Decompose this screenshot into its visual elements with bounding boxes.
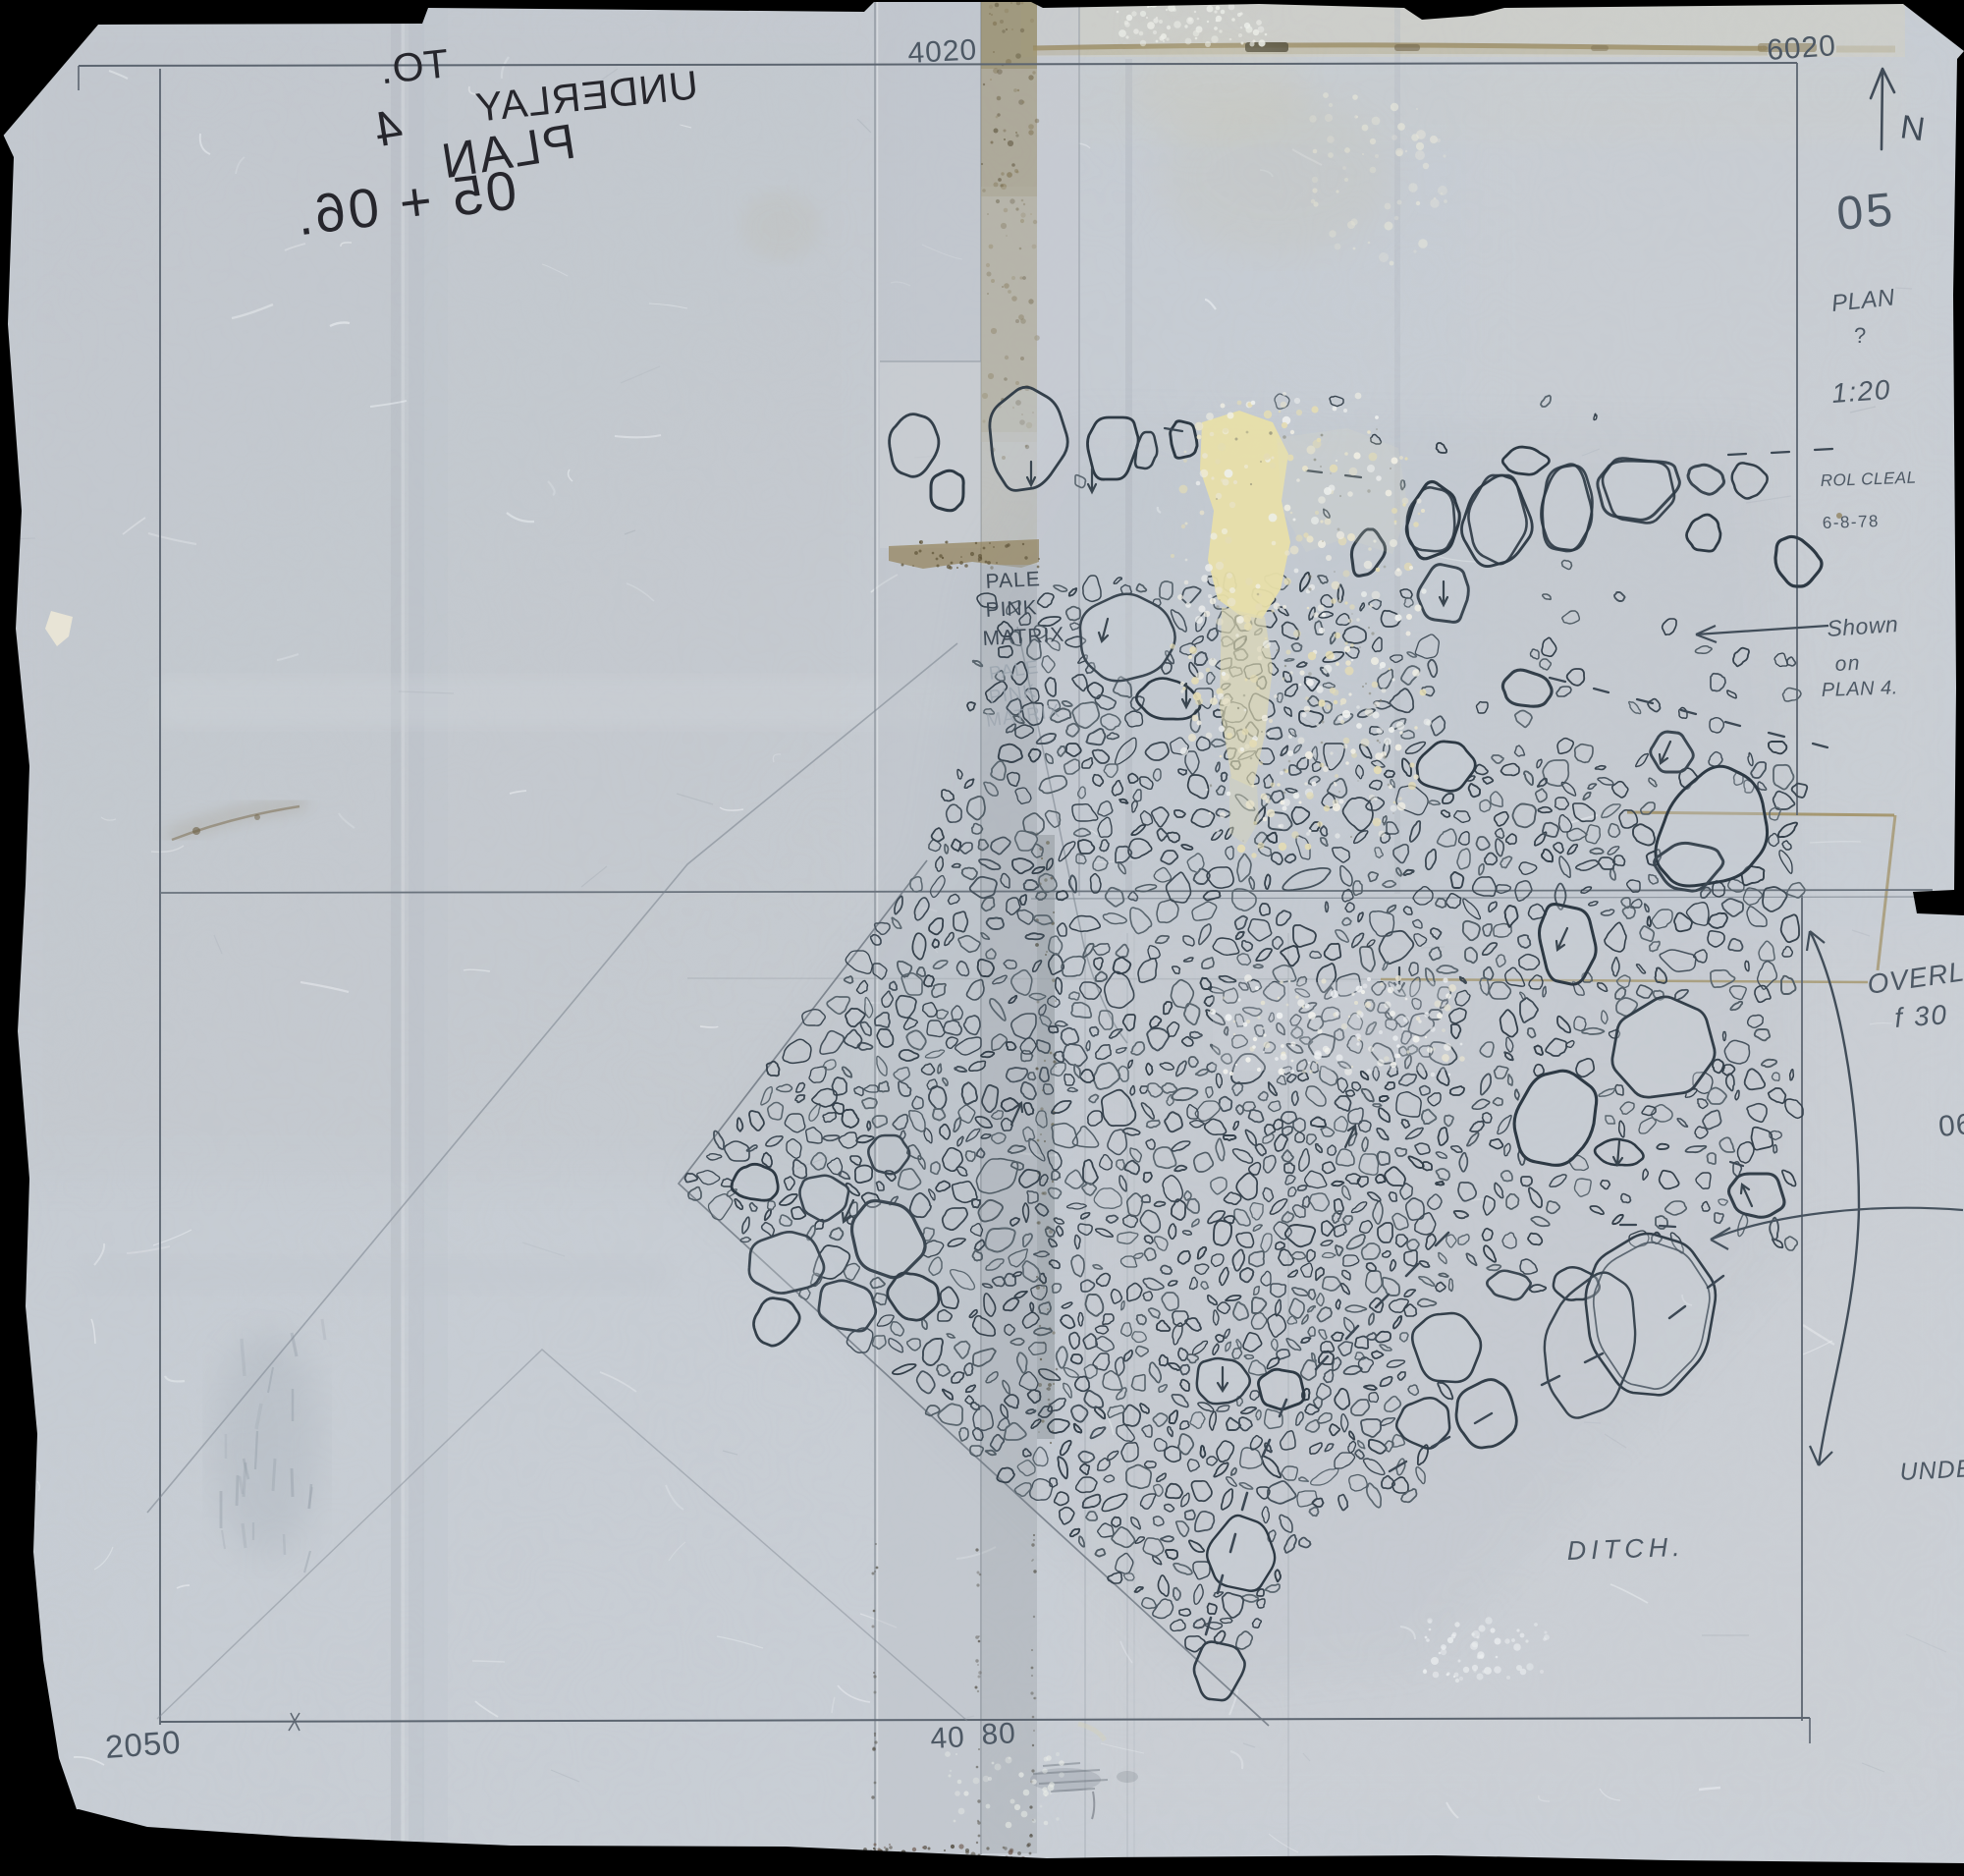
svg-text:2050: 2050 — [104, 1724, 183, 1765]
svg-text:80: 80 — [981, 1717, 1017, 1751]
svg-text:MATRIX: MATRIX — [982, 624, 1065, 650]
svg-text:05: 05 — [1834, 184, 1897, 241]
svg-text:DITCH.: DITCH. — [1566, 1532, 1685, 1566]
svg-text:PINK: PINK — [985, 596, 1038, 622]
svg-text:PLAN 4.: PLAN 4. — [1821, 677, 1898, 701]
svg-text:?: ? — [1854, 323, 1868, 348]
svg-text:N: N — [1898, 108, 1929, 148]
svg-text:6-8-78: 6-8-78 — [1822, 512, 1880, 532]
svg-text:PALE: PALE — [985, 568, 1041, 593]
svg-text:f 30: f 30 — [1893, 999, 1949, 1033]
svg-text:UNDE: UNDE — [1899, 1455, 1964, 1486]
svg-text:40: 40 — [930, 1721, 966, 1755]
svg-text:06: 06 — [1937, 1108, 1964, 1143]
svg-text:on: on — [1834, 652, 1862, 676]
svg-text:ROL CLEAL: ROL CLEAL — [1820, 469, 1916, 490]
svg-text:4020: 4020 — [907, 33, 978, 70]
svg-text:6020: 6020 — [1766, 29, 1837, 67]
svg-text:Shown: Shown — [1827, 611, 1899, 641]
svg-text:1:20: 1:20 — [1830, 374, 1892, 409]
svg-text:TO.: TO. — [377, 40, 451, 92]
